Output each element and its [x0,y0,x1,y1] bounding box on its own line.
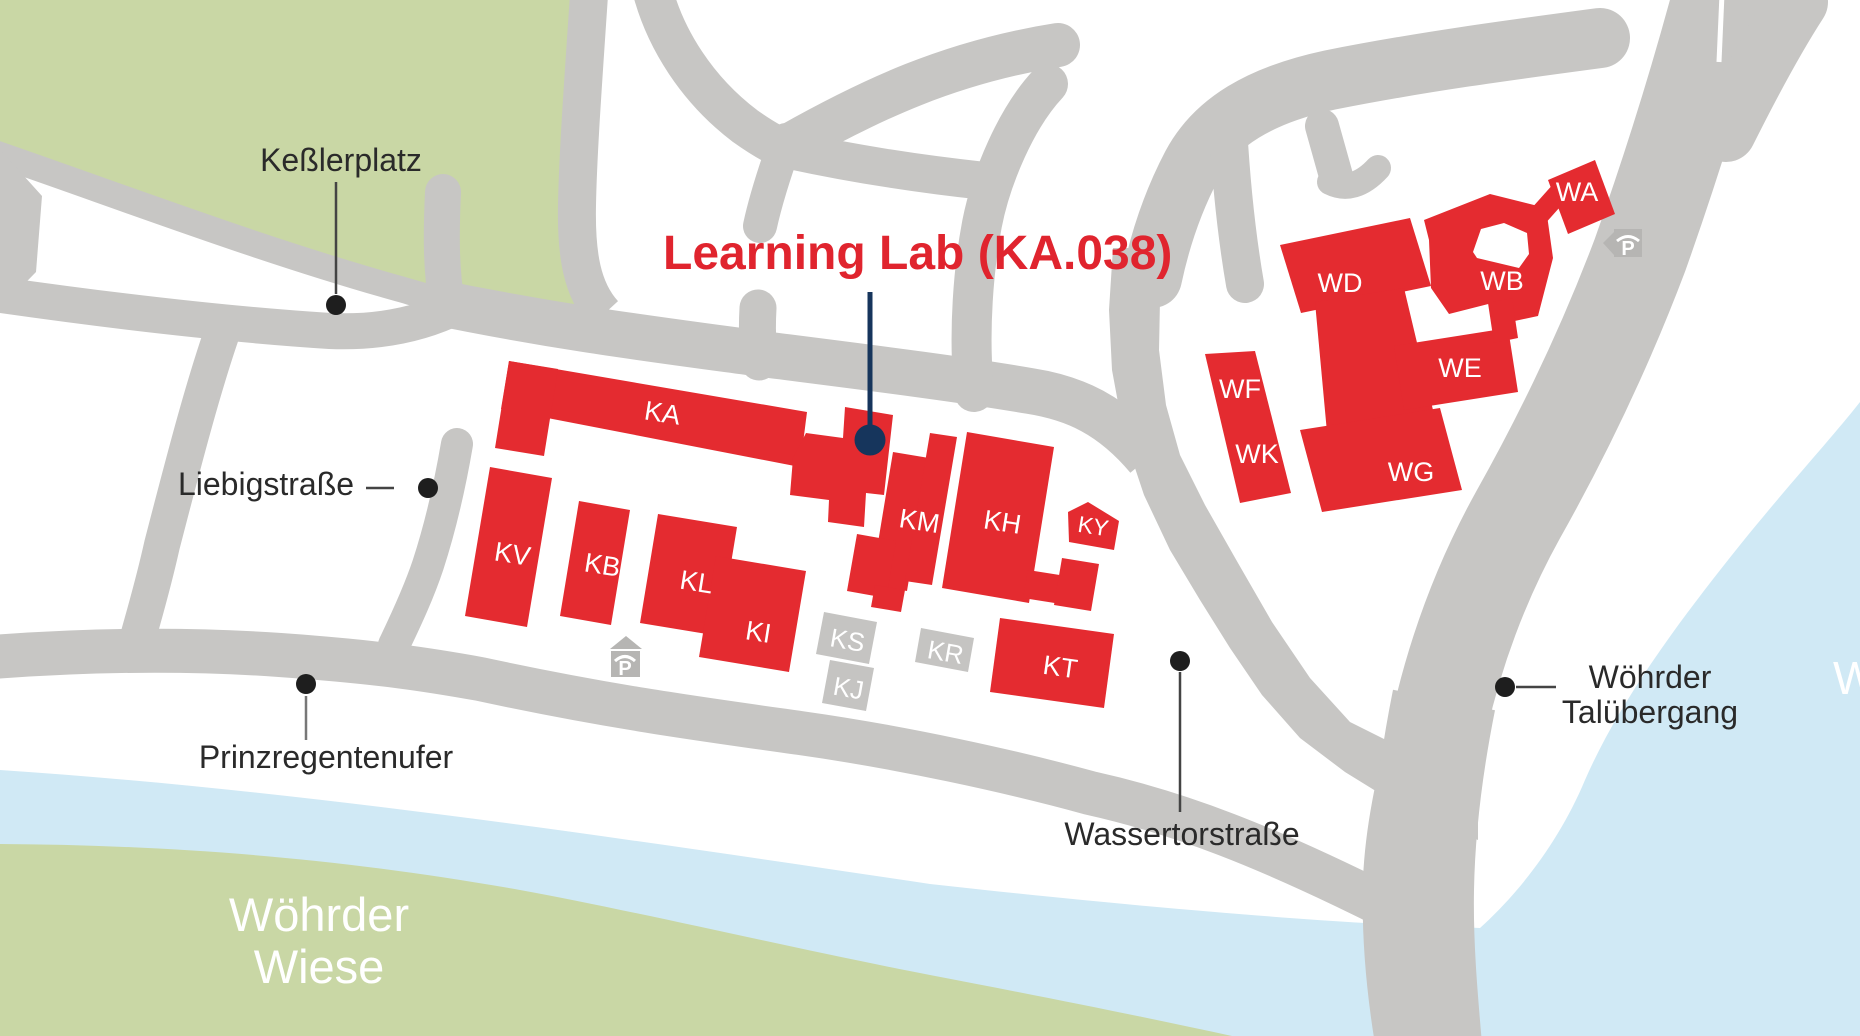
svg-text:Wiese: Wiese [254,940,385,993]
svg-text:WK: WK [1235,439,1279,469]
svg-text:Keßlerplatz: Keßlerplatz [260,142,422,178]
svg-text:Wöhrder: Wöhrder [1589,659,1712,695]
svg-text:WE: WE [1438,353,1482,383]
svg-text:WD: WD [1318,268,1363,298]
svg-text:WG: WG [1388,457,1435,487]
svg-text:KH: KH [982,504,1024,539]
svg-text:KM: KM [897,503,942,539]
svg-text:Prinzregentenufer: Prinzregentenufer [199,739,454,775]
svg-text:WA: WA [1556,177,1599,207]
svg-text:WB: WB [1480,266,1524,296]
svg-text:KJ: KJ [831,671,866,706]
svg-text:W: W [1833,652,1860,704]
svg-text:Wassertorstraße: Wassertorstraße [1064,816,1299,852]
svg-text:KB: KB [582,547,622,582]
svg-text:KR: KR [925,634,966,670]
svg-text:Learning Lab (KA.038): Learning Lab (KA.038) [663,227,1172,280]
svg-text:Wöhrder: Wöhrder [229,888,409,941]
svg-text:WF: WF [1219,374,1261,404]
svg-text:Liebigstraße: Liebigstraße [178,466,354,502]
svg-text:KY: KY [1076,511,1110,541]
svg-text:KA: KA [642,395,682,430]
svg-text:P: P [1621,238,1634,260]
svg-text:KI: KI [743,615,773,649]
svg-text:P: P [618,658,631,680]
svg-text:KV: KV [492,536,532,571]
svg-text:KT: KT [1041,650,1079,685]
svg-text:Talübergang: Talübergang [1562,694,1738,730]
svg-text:KL: KL [678,565,715,600]
svg-text:KS: KS [828,622,867,658]
